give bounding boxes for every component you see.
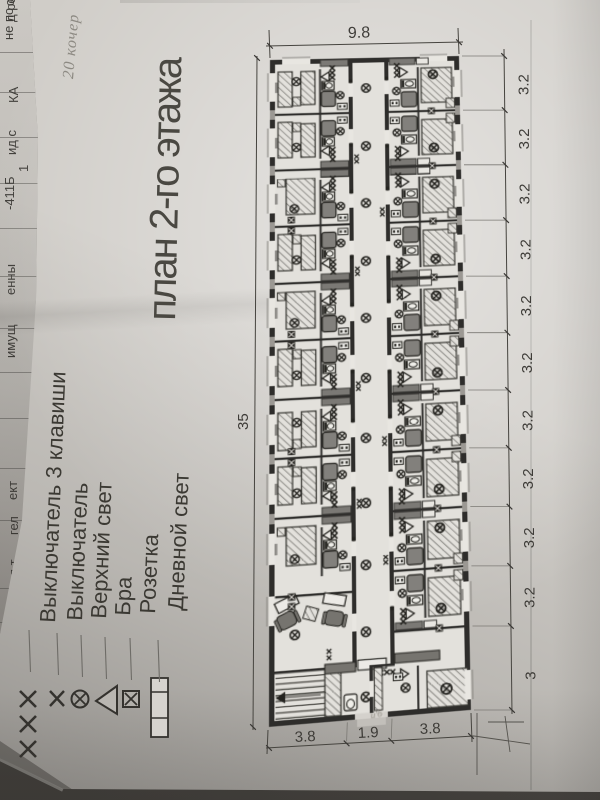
svg-text:3: 3 [522, 671, 539, 679]
svg-text:35: 35 [235, 413, 252, 430]
svg-text:3.2: 3.2 [515, 74, 532, 95]
svg-text:3.2: 3.2 [517, 184, 534, 205]
svg-text:3.2: 3.2 [522, 587, 539, 608]
svg-text:3.2: 3.2 [520, 468, 537, 489]
svg-text:3.2: 3.2 [516, 129, 533, 150]
svg-text:3.2: 3.2 [519, 352, 536, 373]
svg-text:3.8: 3.8 [419, 720, 441, 738]
svg-text:3.8: 3.8 [294, 728, 316, 746]
svg-text:1.9: 1.9 [357, 724, 379, 742]
svg-text:3.2: 3.2 [521, 527, 538, 548]
svg-text:9.8: 9.8 [348, 24, 371, 42]
svg-text:3.2: 3.2 [519, 410, 536, 431]
svg-text:3.2: 3.2 [517, 239, 534, 260]
svg-text:3.2: 3.2 [518, 295, 535, 316]
